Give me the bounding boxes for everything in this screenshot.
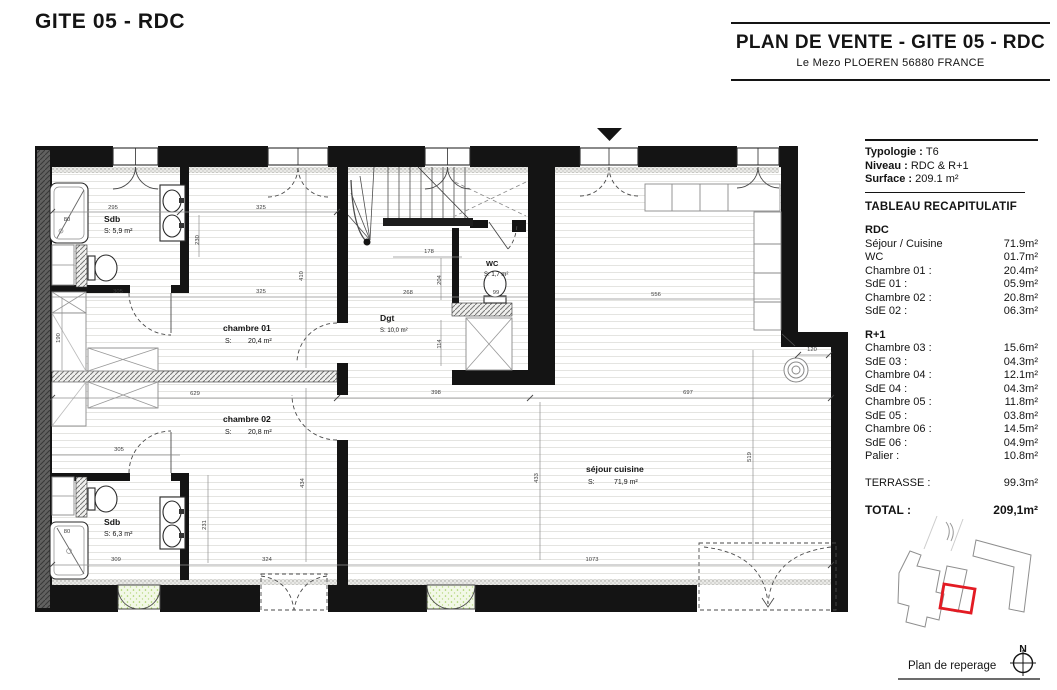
dimension-label: 410 xyxy=(299,271,305,281)
room-label-sdb2: Sdb xyxy=(104,517,120,527)
recap-row-value: 04.3m² xyxy=(1004,356,1038,370)
mini-map xyxy=(898,516,1031,627)
info-label: Surface : xyxy=(865,173,915,185)
summary-panel: Typologie : T6Niveau : RDC & R+1Surface … xyxy=(865,139,1038,518)
recap-row-label: Chambre 01 : xyxy=(865,265,932,279)
recap-row: Chambre 03 :15.6m² xyxy=(865,342,1038,356)
recap-row-label: WC xyxy=(865,251,883,265)
room-area-wc: S: 1,7 m² xyxy=(484,272,508,278)
recap-row: SdE 04 :04.3m² xyxy=(865,383,1038,397)
room-label-chambre01: chambre 01 xyxy=(223,323,271,333)
dimension-label: 204 xyxy=(437,274,443,284)
recap-row-value: 03.8m² xyxy=(1004,410,1038,424)
recap-row: SdE 05 :03.8m² xyxy=(865,410,1038,424)
dimension-label: 324 xyxy=(262,557,272,563)
dimension-label: 309 xyxy=(111,557,121,563)
dimension-label: 268 xyxy=(403,290,413,296)
recap-row: Chambre 02 :20.8m² xyxy=(865,292,1038,306)
total-row: TOTAL : 209,1m² xyxy=(865,504,1038,518)
dimension-label: 697 xyxy=(683,390,693,396)
info-value: 209.1 m² xyxy=(915,173,958,185)
info-value: RDC & R+1 xyxy=(911,160,969,172)
dimension-label: 556 xyxy=(651,292,661,298)
recap-row: Séjour / Cuisine71.9m² xyxy=(865,238,1038,252)
recap-section-heading: RDC xyxy=(865,224,1038,238)
recap-row-value: 15.6m² xyxy=(1004,342,1038,356)
recap-row-value: 11.8m² xyxy=(1005,396,1038,410)
recap-row-label: SdE 02 : xyxy=(865,305,907,319)
recap-row-label: Séjour / Cuisine xyxy=(865,238,943,252)
title-block-subtitle: Le Mezo PLOEREN 56880 FRANCE xyxy=(731,57,1050,69)
recap-row-label: SdE 06 : xyxy=(865,437,907,451)
recap-row-value: 06.3m² xyxy=(1004,305,1038,319)
recap-row: WC01.7m² xyxy=(865,251,1038,265)
recap-row-label: Chambre 05 : xyxy=(865,396,932,410)
recap-row: SdE 03 :04.3m² xyxy=(865,356,1038,370)
recap-row-value: 10.8m² xyxy=(1004,450,1038,464)
recap-row-label: Chambre 02 : xyxy=(865,292,932,306)
dimension-label: 120 xyxy=(807,347,817,353)
recap-row-label: SdE 01 : xyxy=(865,278,907,292)
entrance-arrow xyxy=(597,128,622,141)
recap-heading: TABLEAU RECAPITULATIF xyxy=(865,201,1038,215)
recap-row-label: Chambre 03 : xyxy=(865,342,932,356)
recap-row-label: Chambre 04 : xyxy=(865,369,932,383)
recap-row: Chambre 05 :11.8m² xyxy=(865,396,1038,410)
total-label: TOTAL : xyxy=(865,504,911,518)
dimension-label: 519 xyxy=(747,452,753,462)
recap-row-value: 20.4m² xyxy=(1004,265,1038,279)
dimension-label: 114 xyxy=(437,339,443,349)
recap-row-value: 20.8m² xyxy=(1004,292,1038,306)
dimension-label: 190 xyxy=(56,333,62,343)
title-block-title: PLAN DE VENTE - GITE 05 - RDC xyxy=(731,32,1050,54)
terrasse-value: 99.3m² xyxy=(1004,477,1038,491)
recap-row: SdE 06 :04.9m² xyxy=(865,437,1038,451)
dimension-label: 230 xyxy=(195,235,201,245)
room-area-dgt: S: 10,0 m² xyxy=(380,328,408,334)
room-label-sdb1: Sdb xyxy=(104,214,120,224)
title-block: PLAN DE VENTE - GITE 05 - RDC Le Mezo PL… xyxy=(731,22,1050,81)
recap-row: Chambre 01 :20.4m² xyxy=(865,265,1038,279)
page-title: GITE 05 - RDC xyxy=(35,10,185,34)
recap-row-value: 71.9m² xyxy=(1004,238,1038,252)
recap-row-label: Chambre 06 : xyxy=(865,423,932,437)
reperage-label: Plan de reperage xyxy=(908,660,996,672)
recap-row-value: 04.3m² xyxy=(1004,383,1038,397)
dimension-label: 80 xyxy=(64,529,70,535)
room-label-chambre02: chambre 02 xyxy=(223,414,271,424)
north-compass: N xyxy=(1010,643,1036,676)
dimension-label: 178 xyxy=(424,249,434,255)
room-area-sdb2: S: 6,3 m² xyxy=(104,531,133,538)
recap-row: Chambre 06 :14.5m² xyxy=(865,423,1038,437)
info-row: Typologie : T6 xyxy=(865,146,1038,160)
terrasse-row: TERRASSE : 99.3m² xyxy=(865,477,1038,491)
recap-row-label: SdE 03 : xyxy=(865,356,907,370)
recap-row-label: Palier : xyxy=(865,450,899,464)
dimension-label: 231 xyxy=(202,520,208,530)
info-row: Niveau : RDC & R+1 xyxy=(865,160,1038,174)
dimension-label: 325 xyxy=(256,289,266,295)
stove-column xyxy=(784,358,808,382)
dimension-label: 433 xyxy=(534,473,540,483)
room-label-dgt: Dgt xyxy=(380,313,394,323)
recap-row-label: SdE 05 : xyxy=(865,410,907,424)
total-value: 209,1m² xyxy=(993,504,1038,518)
recap-row-value: 14.5m² xyxy=(1004,423,1038,437)
recap-row-label: SdE 04 : xyxy=(865,383,907,397)
dimension-label: 325 xyxy=(256,205,266,211)
recap-row: SdE 02 :06.3m² xyxy=(865,305,1038,319)
recap-table: RDCSéjour / Cuisine71.9m²WC01.7m²Chambre… xyxy=(865,224,1038,464)
recap-row-value: 05.9m² xyxy=(1004,278,1038,292)
info-label: Niveau : xyxy=(865,160,911,172)
room-label-wc: WC xyxy=(486,259,499,268)
recap-row-value: 12.1m² xyxy=(1004,369,1038,383)
info-label: Typologie : xyxy=(865,146,926,158)
dimension-label: 629 xyxy=(190,391,200,397)
dimension-label: 80 xyxy=(64,217,70,223)
terrasse-label: TERRASSE : xyxy=(865,477,930,491)
recap-row: SdE 01 :05.9m² xyxy=(865,278,1038,292)
info-value: T6 xyxy=(926,146,939,158)
dimension-label: 398 xyxy=(431,390,441,396)
dimension-label: 305 xyxy=(113,289,123,295)
dimension-label: 295 xyxy=(108,205,118,211)
recap-row: Chambre 04 :12.1m² xyxy=(865,369,1038,383)
dimension-label: 1073 xyxy=(586,557,599,563)
recap-row-value: 01.7m² xyxy=(1004,251,1038,265)
recap-section-heading: R+1 xyxy=(865,329,1038,343)
plan-de-vente-page: 2953253053252689955617823041019020411462… xyxy=(0,0,1057,690)
recap-row: Palier :10.8m² xyxy=(865,450,1038,464)
dimension-label: 434 xyxy=(300,477,306,487)
room-area-sdb1: S: 5,9 m² xyxy=(104,228,133,235)
room-label-sejour: séjour cuisine xyxy=(586,464,644,474)
divider xyxy=(865,192,1025,193)
dimension-label: 305 xyxy=(114,447,124,453)
info-row: Surface : 209.1 m² xyxy=(865,173,1038,187)
dimension-label: 99 xyxy=(493,290,499,296)
unit-info: Typologie : T6Niveau : RDC & R+1Surface … xyxy=(865,146,1038,187)
recap-row-value: 04.9m² xyxy=(1004,437,1038,451)
